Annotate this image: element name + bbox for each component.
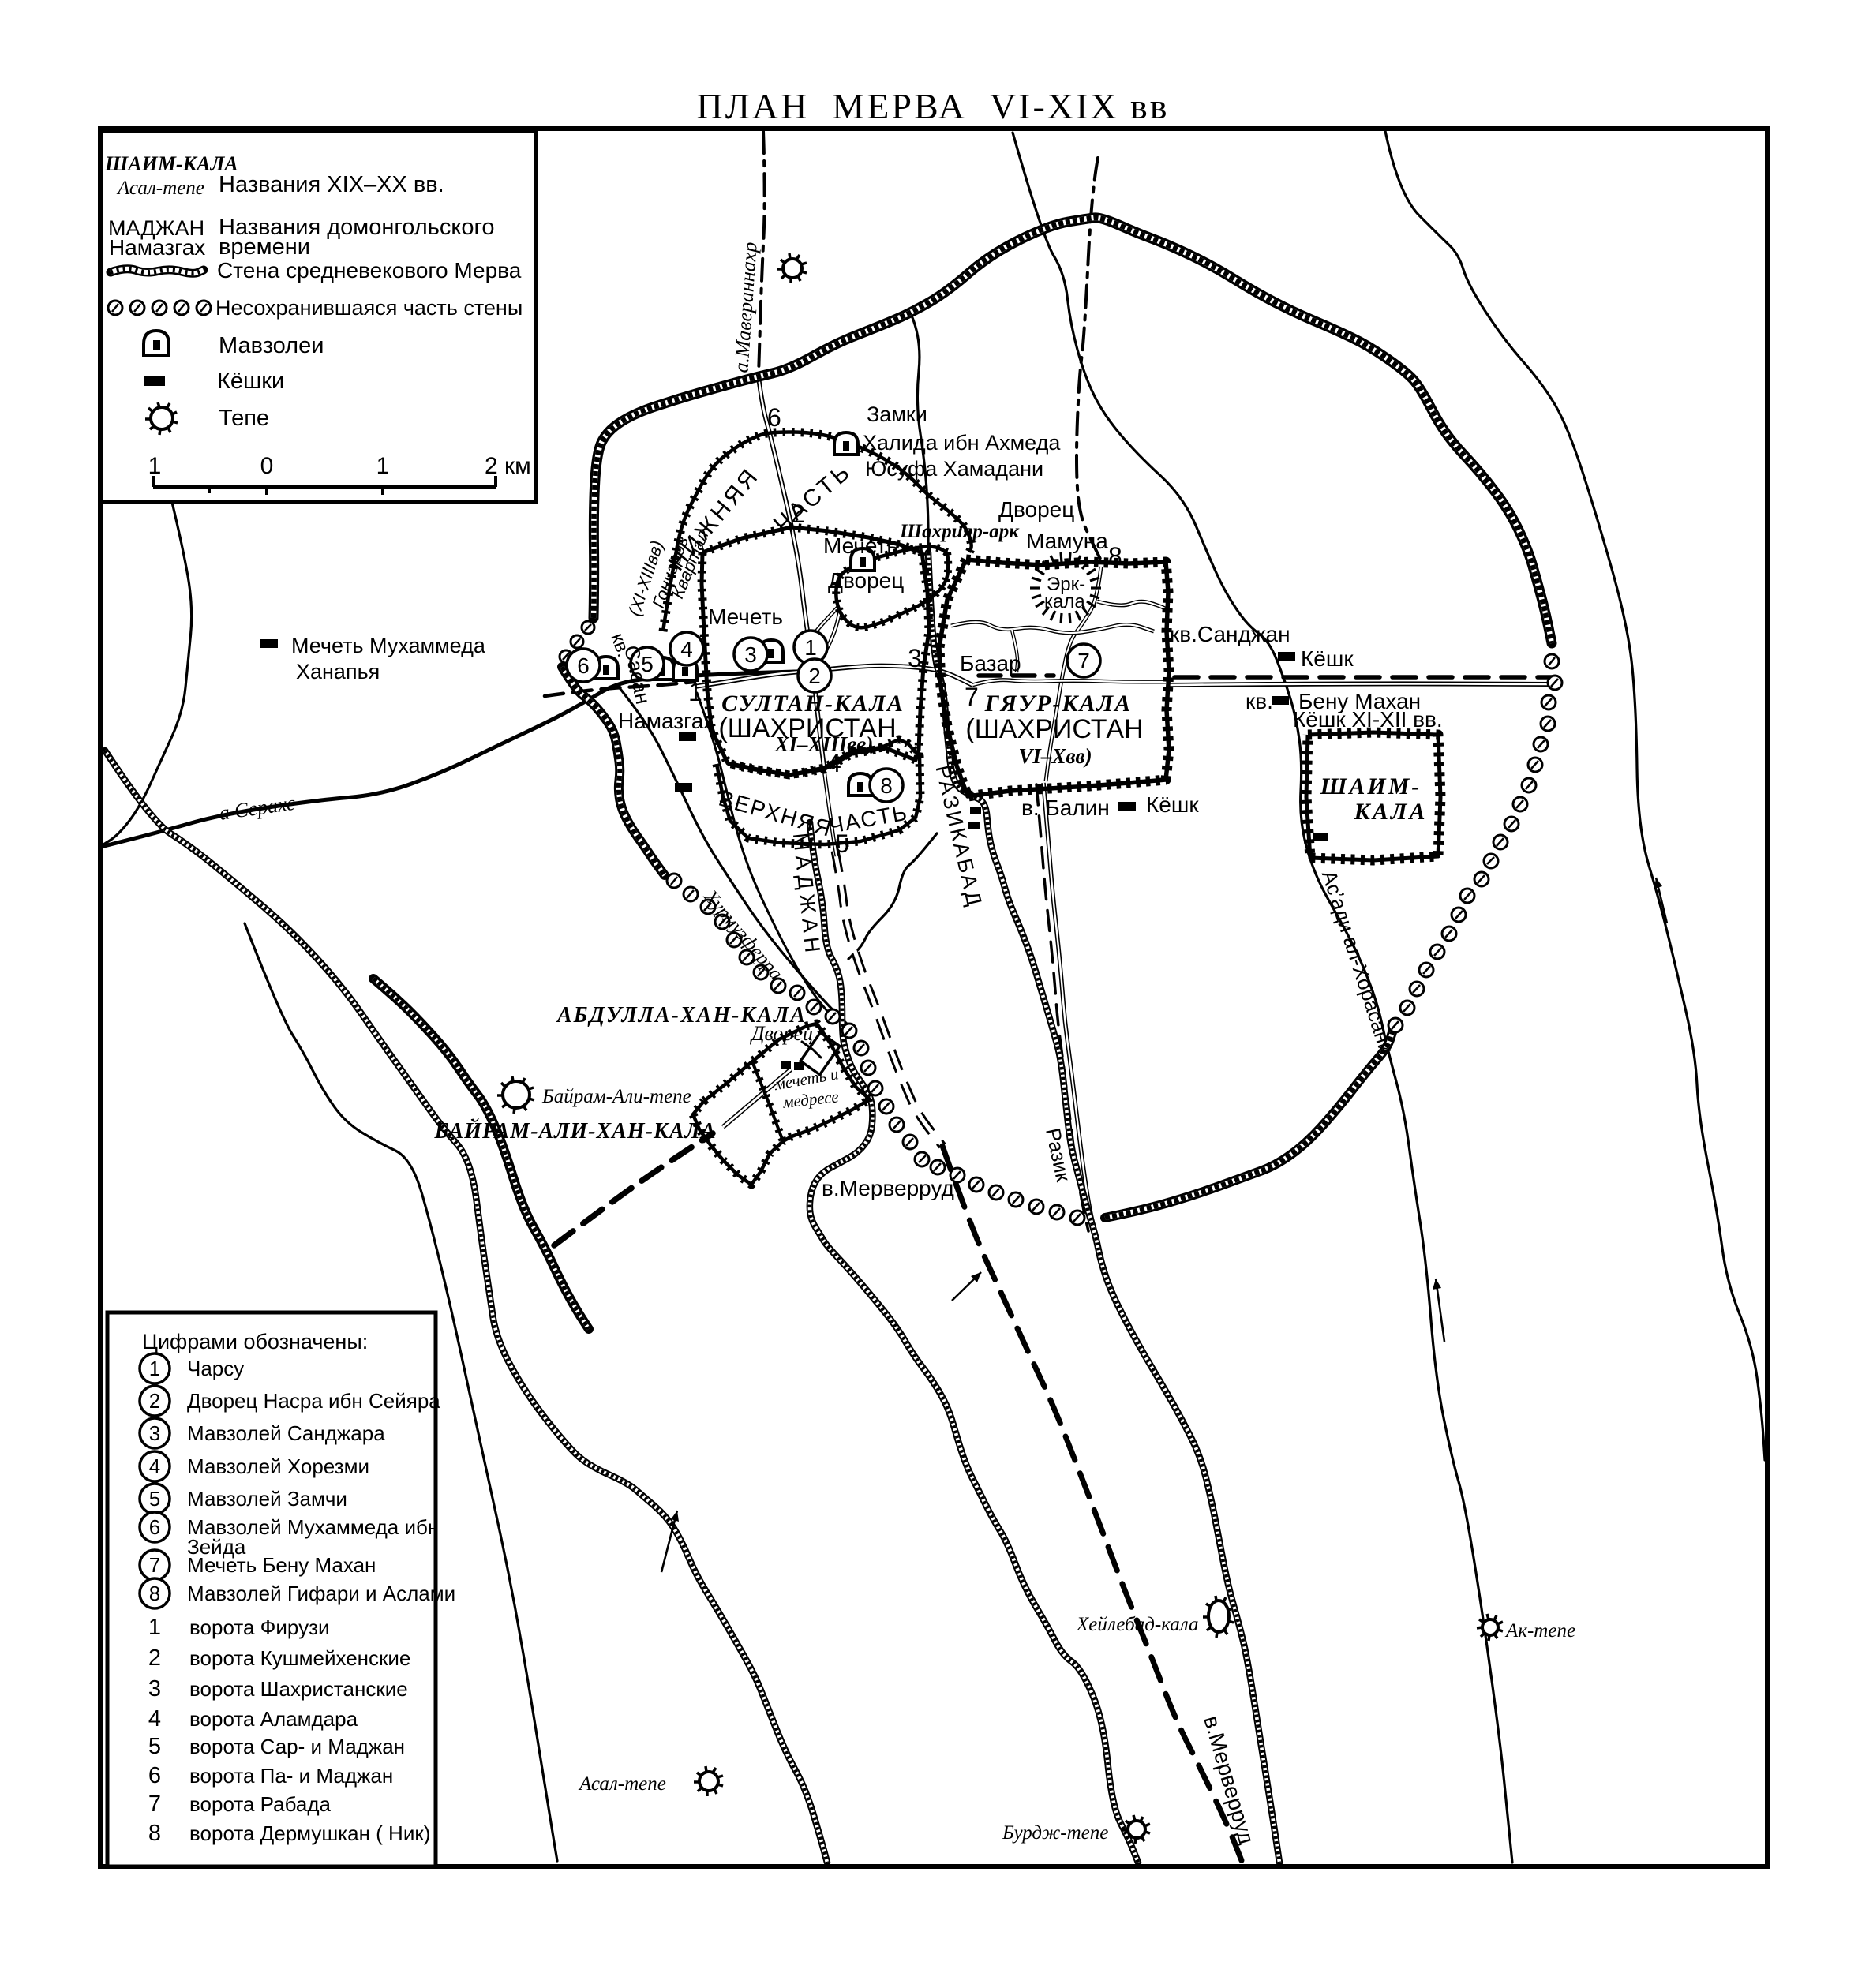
svg-text:2: 2	[808, 664, 821, 688]
svg-text:Шахрияр-арк: Шахрияр-арк	[899, 521, 1020, 542]
svg-text:Мечеть Бену Махан: Мечеть Бену Махан	[187, 1553, 376, 1577]
svg-text:VI–Xвв): VI–Xвв)	[1018, 744, 1092, 768]
svg-text:8: 8	[880, 773, 893, 798]
svg-text:Стена средневекового Мерва: Стена средневекового Мерва	[217, 258, 522, 283]
svg-text:7: 7	[148, 1791, 161, 1817]
svg-text:3: 3	[149, 1421, 160, 1445]
svg-text:1: 1	[804, 635, 817, 660]
svg-text:Дворец: Дворец	[828, 568, 904, 593]
svg-text:ворота Рабада: ворота Рабада	[189, 1792, 331, 1816]
svg-text:3: 3	[744, 642, 757, 667]
svg-text:2 км: 2 км	[485, 453, 531, 479]
svg-text:1: 1	[376, 453, 390, 479]
svg-text:4: 4	[680, 637, 693, 661]
svg-text:0: 0	[260, 453, 274, 479]
svg-text:Мечеть Мухаммеда: Мечеть Мухаммеда	[291, 634, 486, 657]
svg-text:Кёшк XI-XII вв.: Кёшк XI-XII вв.	[1293, 707, 1443, 732]
svg-text:1: 1	[149, 1357, 160, 1380]
svg-text:Мечеть: Мечеть	[823, 534, 898, 558]
svg-text:кв.Санджан: кв.Санджан	[1170, 622, 1290, 646]
svg-text:6: 6	[148, 1763, 161, 1788]
svg-text:Мавзолеи: Мавзолеи	[219, 333, 324, 358]
svg-text:Дворец Насра ибн Сейяра: Дворец Насра ибн Сейяра	[187, 1389, 440, 1413]
svg-text:Ак-тепе: Ак-тепе	[1504, 1620, 1575, 1642]
svg-text:XI–XIIIвв): XI–XIIIвв)	[774, 732, 874, 756]
svg-text:Намазгах: Намазгах	[109, 235, 205, 260]
svg-text:8: 8	[149, 1582, 160, 1605]
svg-text:4: 4	[149, 1454, 160, 1478]
svg-text:Мавзолей Санджара: Мавзолей Санджара	[187, 1421, 385, 1445]
svg-text:4: 4	[148, 1706, 161, 1732]
svg-text:ворота Сар- и Маджан: ворота Сар- и Маджан	[189, 1735, 405, 1758]
svg-text:кв.: кв.	[1246, 689, 1273, 713]
svg-text:1: 1	[688, 678, 702, 706]
svg-text:ворота Шахристанские: ворота Шахристанские	[189, 1677, 408, 1701]
svg-text:Кёшк: Кёшк	[1301, 646, 1354, 671]
svg-text:Чарсу: Чарсу	[187, 1357, 244, 1380]
svg-text:Названия XIX–XX вв.: Названия XIX–XX вв.	[219, 172, 444, 197]
svg-text:Кёшк: Кёшк	[1146, 792, 1199, 817]
svg-text:Ханапья: Ханапья	[296, 660, 380, 683]
svg-text:Замки: Замки	[867, 402, 927, 426]
svg-text:Мечеть: Мечеть	[708, 605, 783, 629]
svg-text:Юсуфа Хамадани: Юсуфа Хамадани	[865, 457, 1043, 481]
svg-text:БАЙРАМ-АЛИ-ХАН-КАЛА: БАЙРАМ-АЛИ-ХАН-КАЛА	[433, 1118, 716, 1144]
svg-text:2: 2	[148, 1645, 161, 1671]
svg-text:(ШАХРИСТАН: (ШАХРИСТАН	[965, 714, 1143, 744]
svg-text:ПЛАН МЕРВА VI-XIX вв: ПЛАН МЕРВА VI-XIX вв	[697, 86, 1170, 126]
svg-text:Мамуна: Мамуна	[1026, 529, 1108, 553]
svg-text:ворота Па- и Маджан: ворота Па- и Маджан	[189, 1764, 393, 1788]
svg-text:2: 2	[149, 1389, 160, 1413]
svg-text:6: 6	[577, 653, 590, 678]
svg-text:7: 7	[1077, 649, 1090, 673]
svg-text:в. Балин: в. Балин	[1021, 796, 1110, 820]
svg-text:Дворец: Дворец	[998, 497, 1074, 522]
svg-text:Кёшки: Кёшки	[217, 369, 284, 394]
svg-text:5: 5	[149, 1487, 160, 1511]
svg-text:3: 3	[908, 644, 922, 672]
svg-text:Асал-тепе: Асал-тепе	[578, 1773, 666, 1795]
svg-text:Намазгах: Намазгах	[618, 709, 714, 733]
svg-text:Мавзолей Гифари и Аслами: Мавзолей Гифари и Аслами	[187, 1582, 455, 1605]
svg-text:ворота Фирузи: ворота Фирузи	[189, 1615, 330, 1639]
svg-text:Несохранившаяся часть стены: Несохранившаяся часть стены	[215, 296, 523, 320]
svg-text:КАЛА: КАЛА	[1354, 799, 1428, 825]
svg-text:Базар: Базар	[960, 651, 1021, 676]
svg-text:Дворец: Дворец	[749, 1022, 813, 1045]
svg-text:Мавзолей Хорезми: Мавзолей Хорезми	[187, 1454, 369, 1478]
svg-text:в.Мерверруд: в.Мерверруд	[822, 1176, 954, 1200]
svg-text:1: 1	[148, 453, 162, 479]
svg-text:Хейлебад-кала: Хейлебад-кала	[1076, 1614, 1198, 1635]
svg-text:Тепе: Тепе	[219, 406, 269, 431]
svg-text:Мавзолей Замчи: Мавзолей Замчи	[187, 1487, 347, 1511]
svg-text:6: 6	[149, 1515, 160, 1539]
svg-text:ШАИМ-: ШАИМ-	[1320, 773, 1422, 799]
svg-text:8: 8	[148, 1821, 161, 1846]
svg-text:Байрам-Али-тепе: Байрам-Али-тепе	[541, 1086, 691, 1107]
svg-text:ворота Аламдара: ворота Аламдара	[189, 1707, 358, 1731]
svg-text:1: 1	[148, 1615, 161, 1640]
svg-text:ворота Дермушкан ( Ник): ворота Дермушкан ( Ник)	[189, 1821, 430, 1845]
svg-text:ГЯУР-КАЛА: ГЯУР-КАЛА	[984, 691, 1133, 717]
svg-text:Халида ибн Ахмеда: Халида ибн Ахмеда	[863, 431, 1061, 455]
svg-text:ворота Кушмейхенские: ворота Кушмейхенские	[189, 1646, 410, 1670]
svg-text:кала: кала	[1044, 591, 1085, 612]
svg-text:7: 7	[149, 1553, 160, 1577]
svg-text:Бурдж-тепе: Бурдж-тепе	[1002, 1822, 1108, 1844]
svg-text:6: 6	[767, 403, 781, 432]
svg-text:3: 3	[148, 1676, 161, 1702]
svg-text:Цифрами обозначены:: Цифрами обозначены:	[142, 1330, 368, 1353]
svg-text:Асал-тепе: Асал-тепе	[116, 178, 204, 199]
svg-text:времени: времени	[219, 234, 310, 260]
svg-text:8: 8	[1108, 542, 1122, 571]
svg-text:7: 7	[965, 683, 979, 711]
svg-text:5: 5	[148, 1734, 161, 1759]
